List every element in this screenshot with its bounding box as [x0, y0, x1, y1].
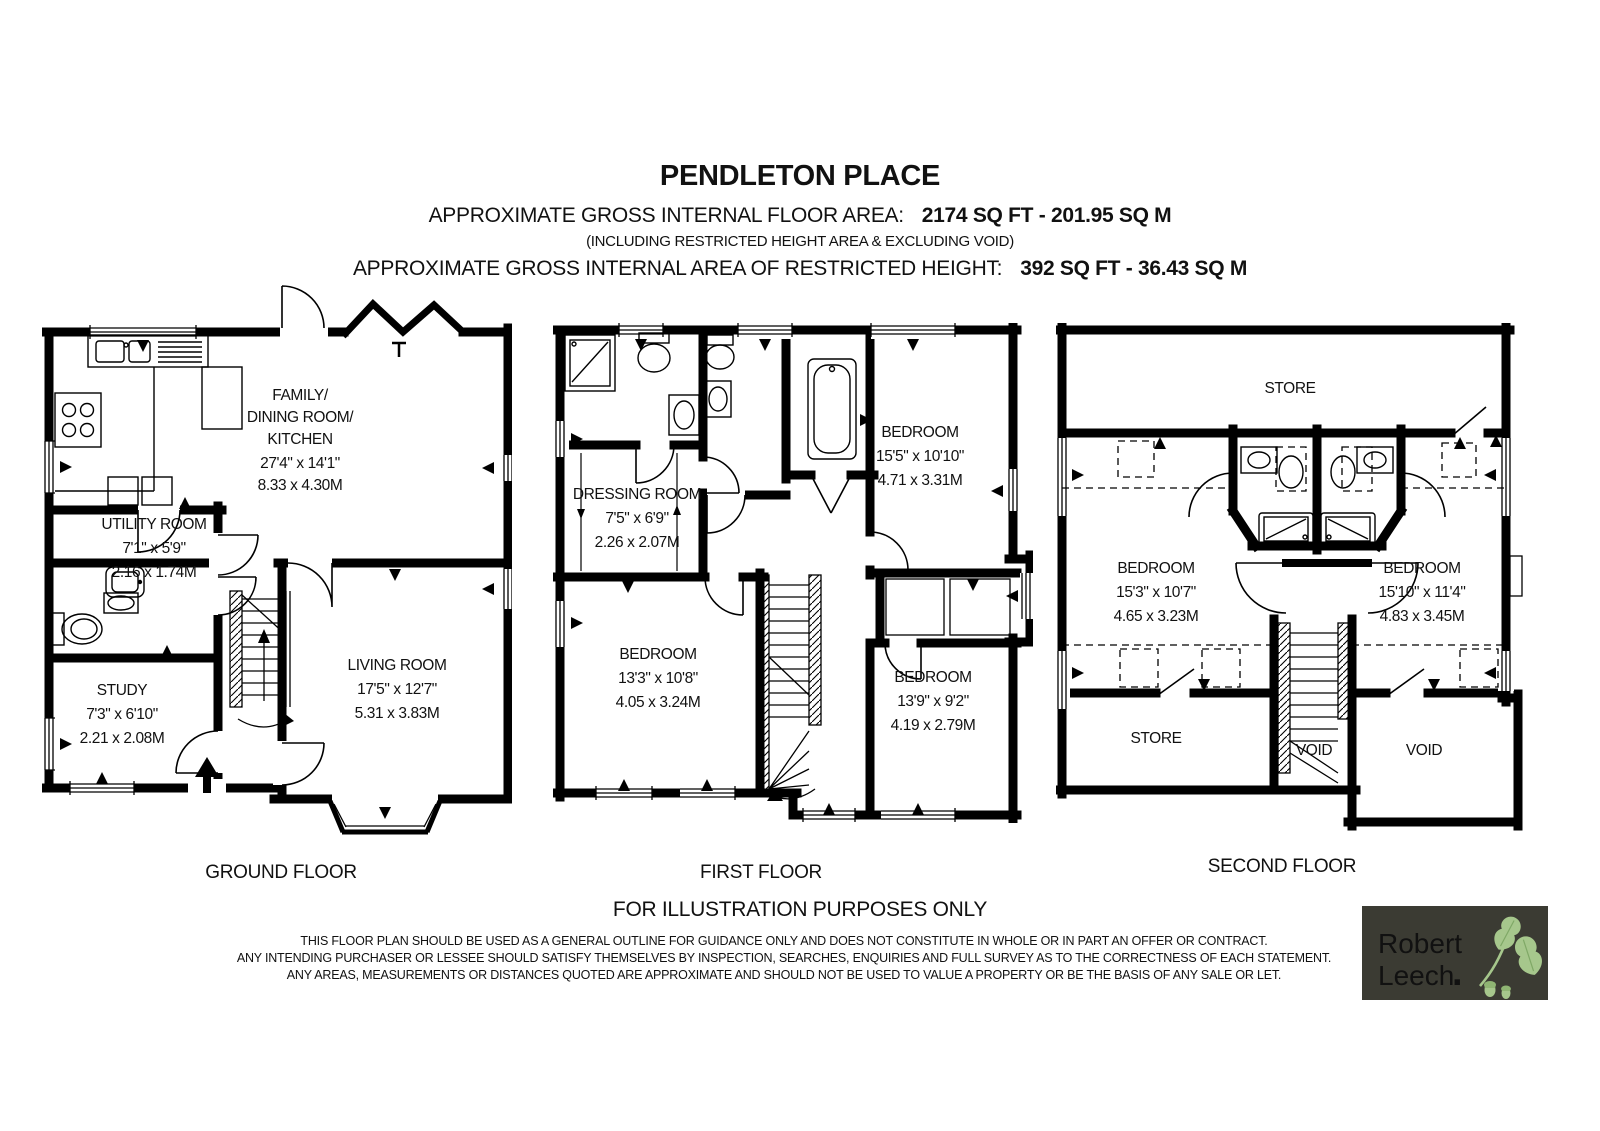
area-note: (INCLUDING RESTRICTED HEIGHT AREA & EXCL… — [0, 233, 1600, 250]
room-label-line: 4.83 x 3.45M — [1380, 608, 1465, 625]
room-label-line: BEDROOM — [619, 646, 696, 663]
room-label-line: 13'9" x 9'2" — [897, 693, 969, 710]
room-label-bedroom-left: BEDROOM 15'3" x 10'7" 4.65 x 3.23M — [1114, 560, 1199, 625]
room-label-family-dining-kitchen: FAMILY/ DINING ROOM/ KITCHEN 27'4" x 14'… — [247, 387, 354, 494]
room-label-bedroom-top-right: BEDROOM 15'5" x 10'10" 4.71 x 3.31M — [876, 424, 964, 489]
disclaimer-line: ANY INTENDING PURCHASER OR LESSEE SHOULD… — [0, 951, 1568, 965]
room-label-line: STORE — [1130, 730, 1181, 747]
logo-name-line1: Robert — [1378, 928, 1462, 959]
room-label-line: 4.65 x 3.23M — [1114, 608, 1199, 625]
room-label-study: STUDY 7'3" x 6'10" 2.21 x 2.08M — [80, 682, 165, 747]
room-label-line: LIVING ROOM — [348, 657, 447, 674]
room-label-line: DINING ROOM/ — [247, 409, 354, 426]
room-label-line: 27'4" x 14'1" — [260, 455, 340, 472]
room-label-line: UTILITY ROOM — [101, 516, 206, 533]
room-label-line: 7'5" x 6'9" — [605, 510, 668, 527]
restricted-area-label: APPROXIMATE GROSS INTERNAL AREA OF RESTR… — [353, 257, 1002, 280]
illustration-note: FOR ILLUSTRATION PURPOSES ONLY — [0, 898, 1600, 922]
room-label-line: 13'3" x 10'8" — [618, 670, 698, 687]
room-label-line: 15'5" x 10'10" — [876, 448, 964, 465]
room-label-void-center: VOID — [1296, 742, 1333, 759]
ensuite-basin-icon — [669, 395, 699, 435]
bathtub-icon — [808, 359, 856, 459]
room-label-line: FAMILY/ — [272, 387, 329, 404]
room-label-line: 15'3" x 10'7" — [1116, 584, 1196, 601]
room-label-line: 2.16 x 1.74M — [112, 564, 197, 581]
disclaimer-line: ANY AREAS, MEASUREMENTS OR DISTANCES QUO… — [0, 968, 1568, 982]
room-label-line: KITCHEN — [267, 431, 332, 448]
room-label-store-bottom: STORE — [1130, 730, 1181, 747]
room-label-line: 4.19 x 2.79M — [891, 717, 976, 734]
room-label-line: BEDROOM — [894, 669, 971, 686]
room-label-line: 8.33 x 4.30M — [258, 477, 343, 494]
room-label-line: 7'3" x 6'10" — [86, 706, 158, 723]
floorplan-sheet: PENDLETON PLACE APPROXIMATE GROSS INTERN… — [0, 0, 1600, 1131]
zigzag-roofline — [343, 304, 463, 357]
disclaimer-line: THIS FLOOR PLAN SHOULD BE USED AS A GENE… — [0, 934, 1568, 948]
room-label-store-top: STORE — [1264, 380, 1315, 397]
wardrobes — [886, 579, 1010, 635]
room-label-line: STUDY — [97, 682, 148, 699]
room-label-line: 4.71 x 3.31M — [878, 472, 963, 489]
second-stairs — [1278, 623, 1350, 783]
restricted-area-value: 392 SQ FT - 36.43 SQ M — [1020, 257, 1247, 280]
logo-name-line2: Leech — [1378, 960, 1454, 991]
room-label-line: 2.21 x 2.08M — [80, 730, 165, 747]
room-label-line: 5.31 x 3.83M — [355, 705, 440, 722]
floor-title-first: FIRST FLOOR — [700, 862, 822, 884]
room-label-line: 4.05 x 3.24M — [616, 694, 701, 711]
floor-title-second: SECOND FLOOR — [1208, 856, 1356, 878]
hob-icon — [55, 393, 101, 447]
second-doors — [1158, 407, 1486, 695]
room-label-living: LIVING ROOM 17'5" x 12'7" 5.31 x 3.83M — [348, 657, 447, 722]
room-label-line: 7'1" x 5'9" — [122, 540, 185, 557]
floor-title-ground: GROUND FLOOR — [205, 862, 357, 884]
logo-dot: . — [1452, 952, 1463, 994]
room-label-bedroom-bottom-right: BEDROOM 13'9" x 9'2" 4.19 x 2.79M — [891, 669, 976, 734]
room-label-line: DRESSING ROOM — [573, 486, 701, 503]
first-stairs — [757, 575, 821, 801]
room-label-line: VOID — [1406, 742, 1443, 759]
gross-area-value: 2174 SQ FT - 201.95 SQ M — [922, 204, 1172, 227]
room-label-utility: UTILITY ROOM 7'1" x 5'9" 2.16 x 1.74M — [101, 516, 206, 581]
room-label-line: 15'10" x 11'4" — [1379, 584, 1466, 601]
gross-area-line: APPROXIMATE GROSS INTERNAL FLOOR AREA:21… — [0, 204, 1600, 228]
room-label-dressing: DRESSING ROOM 7'5" x 6'9" 2.26 x 2.07M — [573, 486, 701, 551]
room-label-line: 2.26 x 2.07M — [595, 534, 680, 551]
room-label-line: 17'5" x 12'7" — [357, 681, 437, 698]
page-title: PENDLETON PLACE — [0, 160, 1600, 193]
room-label-void-right: VOID — [1406, 742, 1443, 759]
wc-fixtures — [51, 593, 138, 645]
room-label-bedroom-bottom-left: BEDROOM 13'3" x 10'8" 4.05 x 3.24M — [616, 646, 701, 711]
room-label-bedroom-right: BEDROOM 15'10" x 11'4" 4.83 x 3.45M — [1379, 560, 1466, 625]
room-label-line: BEDROOM — [1383, 560, 1460, 577]
room-label-line: STORE — [1264, 380, 1315, 397]
restricted-area-line: APPROXIMATE GROSS INTERNAL AREA OF RESTR… — [0, 257, 1600, 281]
floor-plan-ground: FAMILY/ DINING ROOM/ KITCHEN 27'4" x 14'… — [42, 283, 512, 858]
first-walls — [556, 326, 1030, 819]
room-label-line: BEDROOM — [1117, 560, 1194, 577]
robert-leech-logo: Robert Leech . — [1362, 906, 1548, 1000]
room-label-line: BEDROOM — [881, 424, 958, 441]
shower-icon — [565, 335, 615, 391]
gross-area-label: APPROXIMATE GROSS INTERNAL FLOOR AREA: — [429, 204, 904, 227]
room-label-line: VOID — [1296, 742, 1333, 759]
floor-plan-first: DRESSING ROOM 7'5" x 6'9" 2.26 x 2.07M B… — [553, 323, 1033, 823]
wc-toilet-icon — [705, 335, 734, 417]
ground-doors — [138, 286, 332, 785]
floor-plan-second: STORE BEDROOM 15'3" x 10'7" 4.65 x 3.23M… — [1056, 323, 1526, 833]
